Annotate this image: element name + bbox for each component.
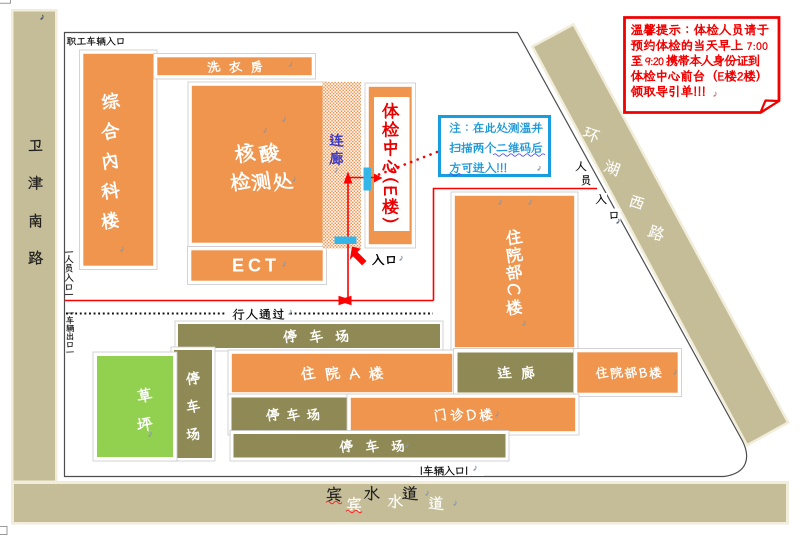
svg-text:ECT: ECT <box>232 256 280 276</box>
